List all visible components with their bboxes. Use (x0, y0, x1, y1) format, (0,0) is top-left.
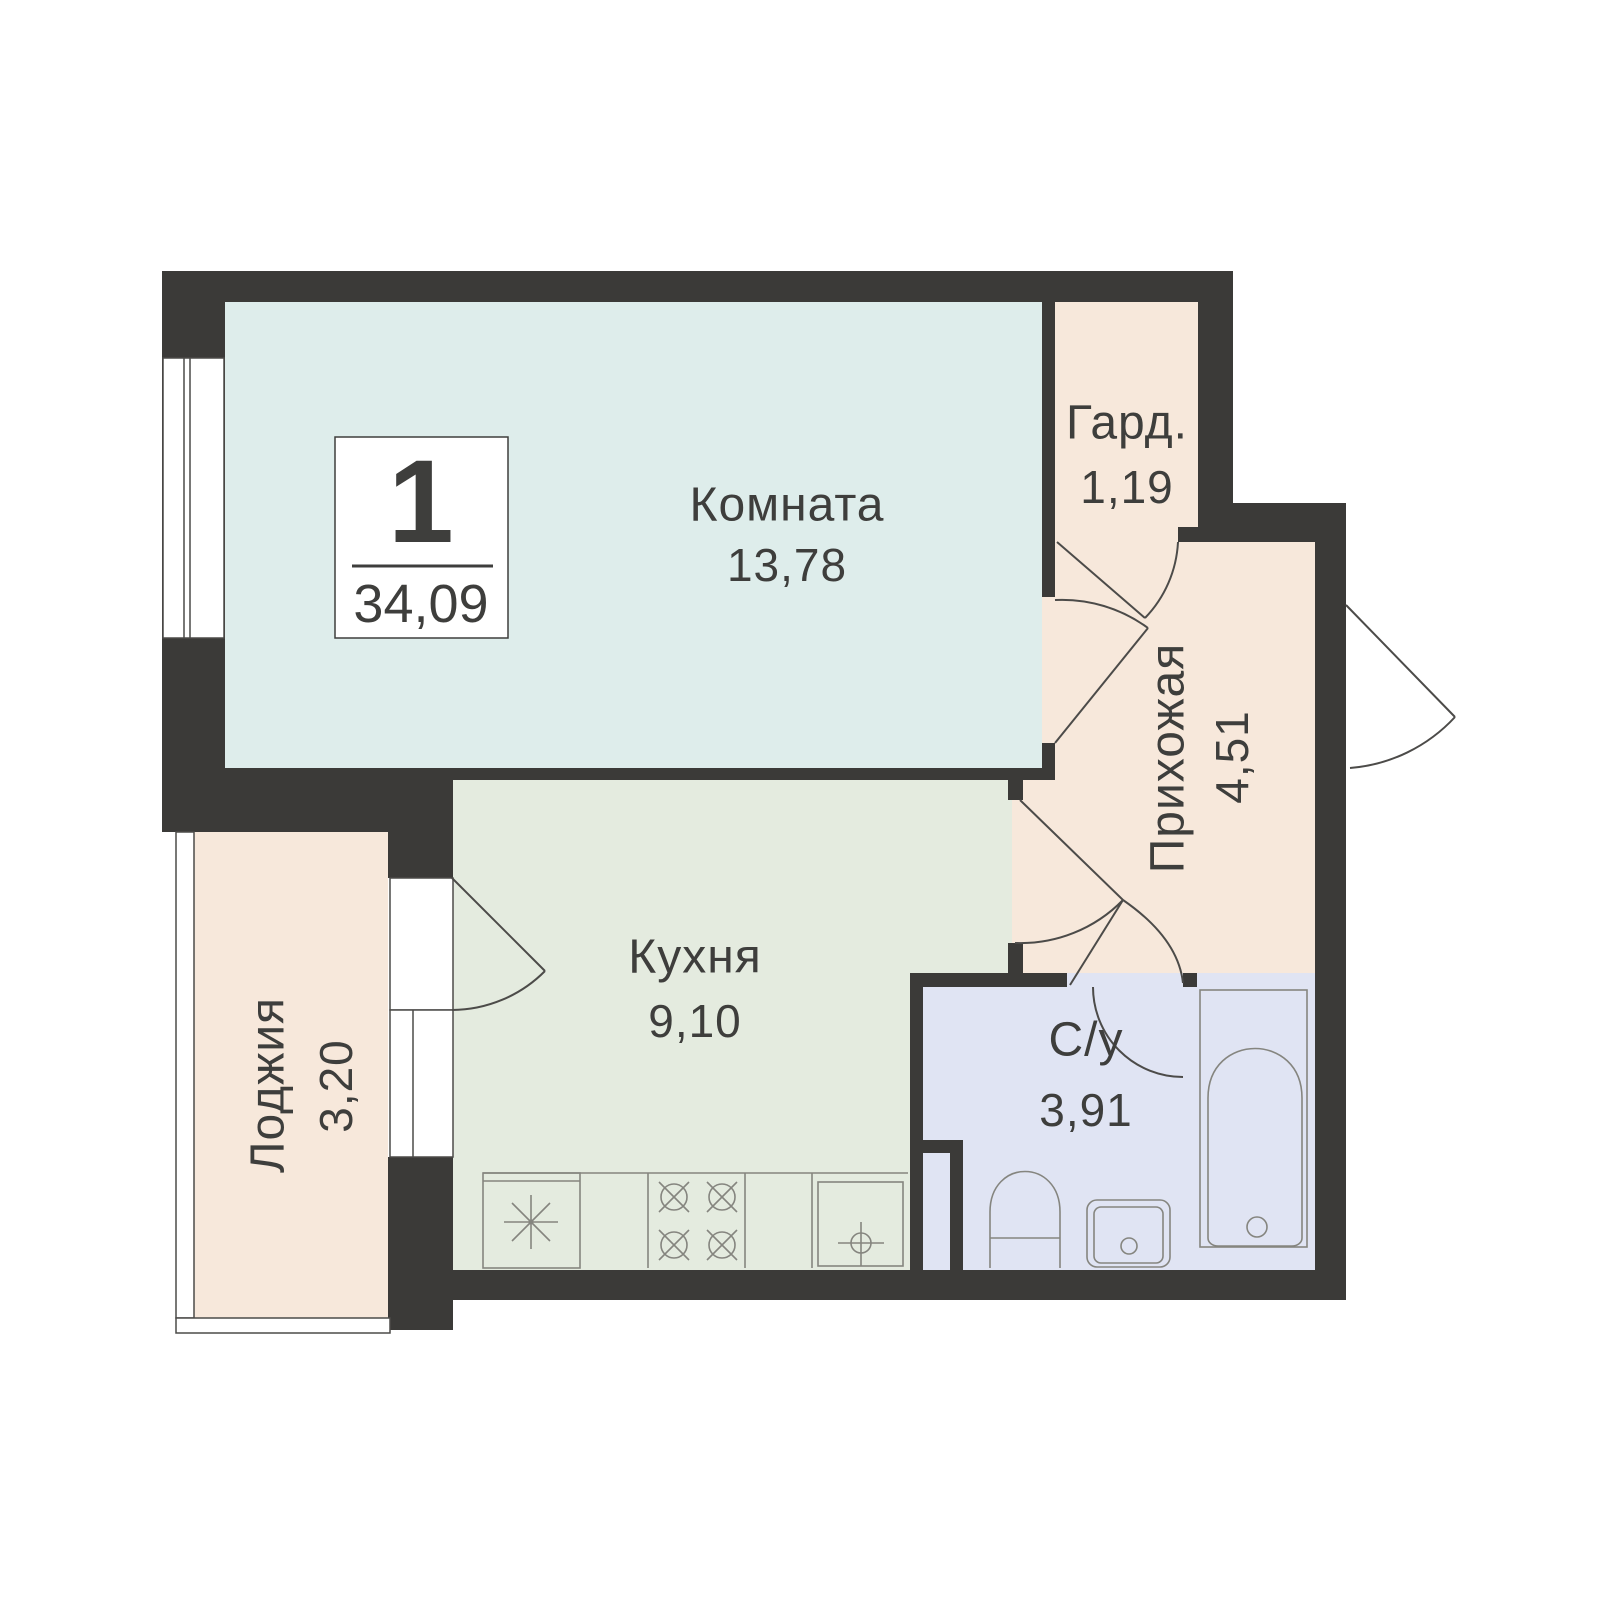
living-room-label: Комната (690, 479, 885, 532)
loggia-railing-left (176, 832, 194, 1318)
balcony-window (390, 1010, 453, 1157)
wall-right (1315, 503, 1346, 1300)
living-window (163, 358, 224, 638)
floor-plan-canvas: 1 34,09 Комната 13,78 Гард. 1,19 Прихожа… (0, 0, 1620, 1620)
hallway-area: 4,51 (1206, 710, 1258, 804)
wall-wardrobe-doorstop (1178, 527, 1198, 542)
loggia-label: Лоджия (242, 997, 295, 1173)
kitchen-label: Кухня (628, 931, 761, 984)
wall-living-hall-upper (1042, 302, 1055, 597)
bathroom-area: 3,91 (1039, 1084, 1133, 1136)
wall-bathroom-niche-h (910, 1140, 963, 1153)
wall-kitchen-doorstop-top (1008, 780, 1023, 800)
wall-kitchen-bathroom (910, 973, 923, 1270)
hallway-label: Прихожая (1142, 643, 1195, 873)
wall-kitchen-left-upper (388, 832, 453, 878)
apartment-badge: 1 34,09 (335, 436, 508, 638)
wall-living-kitchen (440, 768, 1055, 780)
wall-kitchen-left-lower (388, 1157, 453, 1330)
loggia-railing-bottom (176, 1318, 390, 1333)
bathroom-label: С/у (1049, 1014, 1124, 1067)
loggia-area: 3,20 (310, 1039, 362, 1133)
badge-room-count: 1 (388, 436, 454, 568)
wall-wardrobe-right (1198, 271, 1233, 542)
wall-kitchen-doorstop-bottom (1008, 943, 1023, 973)
kitchen-area: 9,10 (648, 995, 742, 1047)
living-room-area: 13,78 (727, 539, 847, 591)
wardrobe-label: Гард. (1066, 397, 1188, 450)
balcony-door-leaf-panel (390, 878, 453, 1010)
wardrobe-area: 1,19 (1080, 461, 1174, 513)
wall-living-hall-lower (1042, 743, 1055, 780)
wall-bathroom-niche-v (950, 1153, 963, 1270)
wall-top (162, 271, 1233, 302)
wall-bathroom-top-left (910, 973, 1067, 987)
wall-loggia-top (162, 768, 453, 832)
wall-bottom (453, 1270, 1346, 1300)
wall-bathroom-top-right (1183, 973, 1197, 987)
badge-total-area: 34,09 (353, 574, 488, 634)
floor-plan-page: 1 34,09 Комната 13,78 Гард. 1,19 Прихожа… (0, 0, 1620, 1620)
entrance-door-arc (1346, 605, 1455, 768)
